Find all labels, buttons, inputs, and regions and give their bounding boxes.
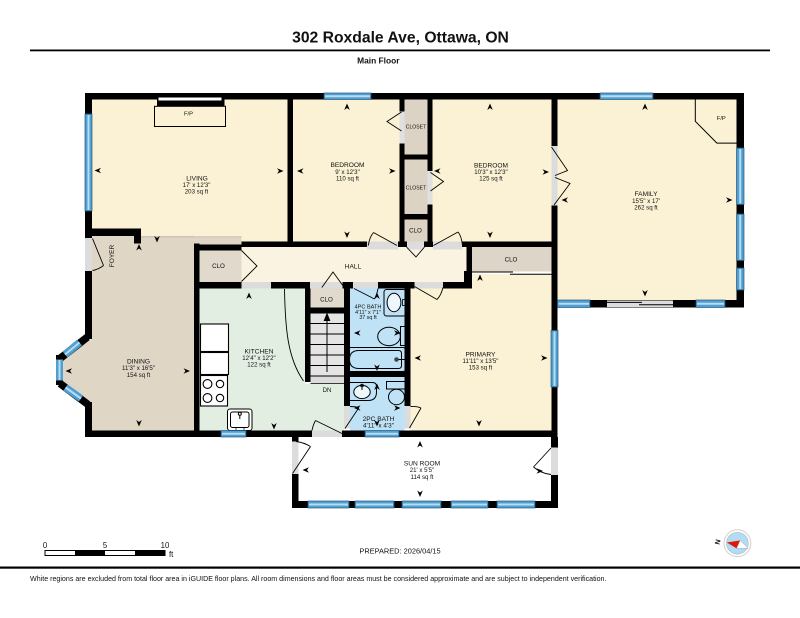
- svg-text:CLO: CLO: [409, 228, 422, 235]
- svg-text:CLO: CLO: [505, 257, 518, 264]
- svg-text:FOYER: FOYER: [109, 245, 116, 268]
- svg-text:CLOSET: CLOSET: [406, 125, 426, 131]
- svg-text:5: 5: [103, 541, 108, 550]
- svg-text:10: 10: [161, 541, 170, 550]
- svg-text:0: 0: [43, 541, 48, 550]
- svg-text:154 sq ft: 154 sq ft: [127, 372, 151, 379]
- svg-text:125 sq ft: 125 sq ft: [479, 176, 503, 183]
- svg-text:203 sq ft: 203 sq ft: [185, 189, 209, 196]
- svg-text:F/P: F/P: [184, 111, 193, 117]
- svg-text:PREPARED: 2026/04/15: PREPARED: 2026/04/15: [359, 547, 440, 556]
- svg-text:N: N: [715, 539, 723, 546]
- svg-text:114 sq ft: 114 sq ft: [411, 474, 434, 481]
- svg-text:37 sq ft: 37 sq ft: [359, 315, 377, 321]
- svg-text:F/P: F/P: [717, 116, 726, 122]
- svg-text:CLO: CLO: [320, 297, 333, 304]
- svg-text:302 Roxdale Ave, Ottawa, ON: 302 Roxdale Ave, Ottawa, ON: [292, 30, 509, 47]
- svg-text:122 sq ft: 122 sq ft: [247, 362, 271, 369]
- svg-text:DN: DN: [323, 388, 332, 394]
- svg-text:110 sq ft: 110 sq ft: [336, 175, 359, 182]
- svg-text:CLOSET: CLOSET: [406, 186, 426, 192]
- svg-text:4'11" x 4'3": 4'11" x 4'3": [363, 422, 394, 429]
- svg-text:153 sq ft: 153 sq ft: [469, 365, 493, 372]
- svg-text:ft: ft: [169, 550, 174, 559]
- svg-text:HALL: HALL: [345, 263, 362, 270]
- svg-text:262 sq ft: 262 sq ft: [634, 204, 658, 211]
- svg-text:White regions are excluded fro: White regions are excluded from total fl…: [30, 575, 607, 583]
- svg-text:Main Floor: Main Floor: [357, 55, 400, 65]
- svg-text:CLO: CLO: [212, 263, 225, 270]
